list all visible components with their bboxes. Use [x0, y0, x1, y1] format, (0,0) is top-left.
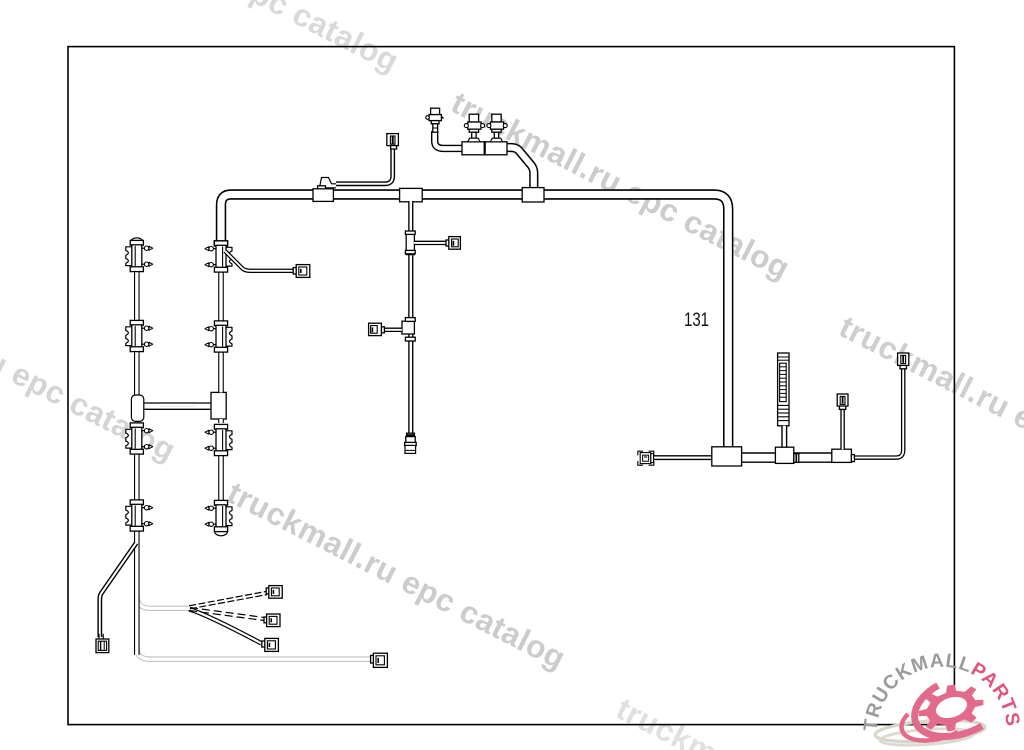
svg-text:131: 131	[684, 310, 709, 331]
